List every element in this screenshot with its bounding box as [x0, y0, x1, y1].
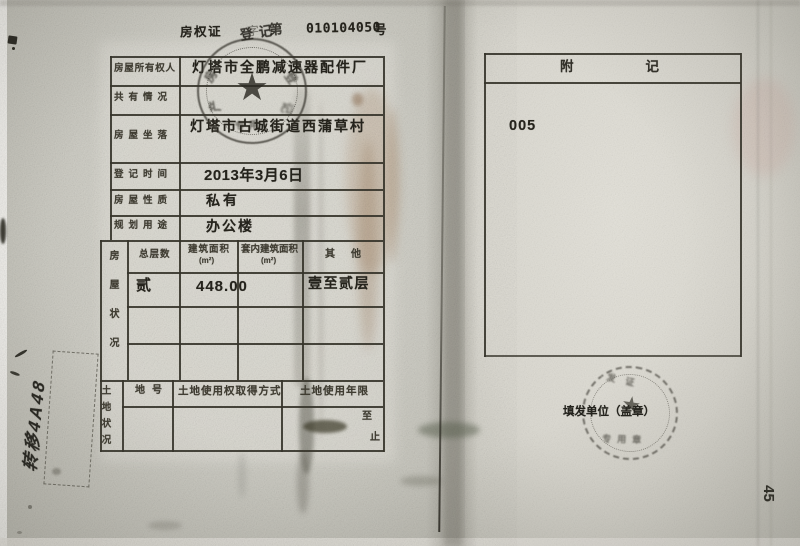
floors-value: 贰 — [136, 278, 151, 293]
land-term-from: 至 — [362, 412, 372, 422]
seal-ring-char: 产 — [208, 99, 222, 113]
scan-bottom-edge — [0, 538, 800, 546]
remarks-note: 005 — [509, 119, 536, 134]
row-label-co-ownership: 共有情况 — [114, 93, 172, 103]
col-header-building-area: 建筑面积 — [188, 245, 230, 255]
row-label-house-nature: 房屋性质 — [114, 196, 172, 206]
right-page-crease — [757, 0, 759, 546]
remarks-header: 附记 — [560, 60, 731, 74]
certificate-number-suffix: 号 — [374, 24, 387, 37]
seal-star-icon: ★ — [235, 69, 269, 107]
section-label-land-status: 土地状况 — [100, 385, 110, 447]
col-header-other: 其他 — [325, 250, 377, 260]
scan-top-edge — [0, 0, 800, 6]
scanned-certificate-page: 房权证 字 第 010104050 号 房屋所有权人 灯塔市全鹏减速器配件厂 共… — [0, 0, 800, 546]
page-number: 45 — [761, 485, 776, 502]
row-label-owner: 房屋所有权人 — [114, 64, 176, 74]
area-value: 448.00 — [196, 279, 248, 294]
row-label-registration-date: 登记时间 — [114, 170, 172, 180]
edge-black-mark — [7, 35, 17, 44]
col-header-total-floors: 总层数 — [139, 250, 171, 260]
inner-area-unit: (m²) — [261, 257, 276, 265]
registration-date-value: 2013年3月6日 — [204, 168, 304, 183]
row-label-planned-use: 规划用途 — [114, 221, 172, 231]
spine-shadow — [426, 0, 478, 546]
col-header-lot-number: 地号 — [135, 386, 169, 396]
registration-seal: ★ 房 产 登 记 专用 — [197, 38, 307, 144]
certificate-number: 010104050 — [306, 21, 381, 35]
edge-black-dot — [12, 47, 15, 50]
planned-use-value: 办公楼 — [206, 219, 254, 233]
seal-bottom-arc-char: 专用章 — [602, 435, 647, 446]
house-nature-value: 私有 — [206, 192, 240, 207]
col-header-land-term: 土地使用年限 — [300, 386, 369, 397]
row-label-location: 房屋坐落 — [114, 131, 172, 141]
margin-stamp-box — [43, 351, 98, 488]
other-value: 壹至贰层 — [308, 276, 370, 290]
seal-bottom-arc-char: 专用 — [235, 121, 264, 133]
right-page-crease — [770, 0, 772, 546]
col-header-inner-area: 套内建筑面积 — [241, 245, 298, 255]
land-term-to: 止 — [370, 433, 380, 443]
certificate-title: 房权证 — [180, 26, 222, 39]
building-area-unit: (m²) — [199, 257, 214, 265]
col-header-land-right-method: 土地使用权取得方式 — [178, 386, 282, 397]
issuer-label: 填发单位（盖章） — [563, 407, 655, 419]
section-label-house-status: 房屋状况 — [107, 250, 117, 372]
scan-left-edge — [0, 0, 7, 546]
